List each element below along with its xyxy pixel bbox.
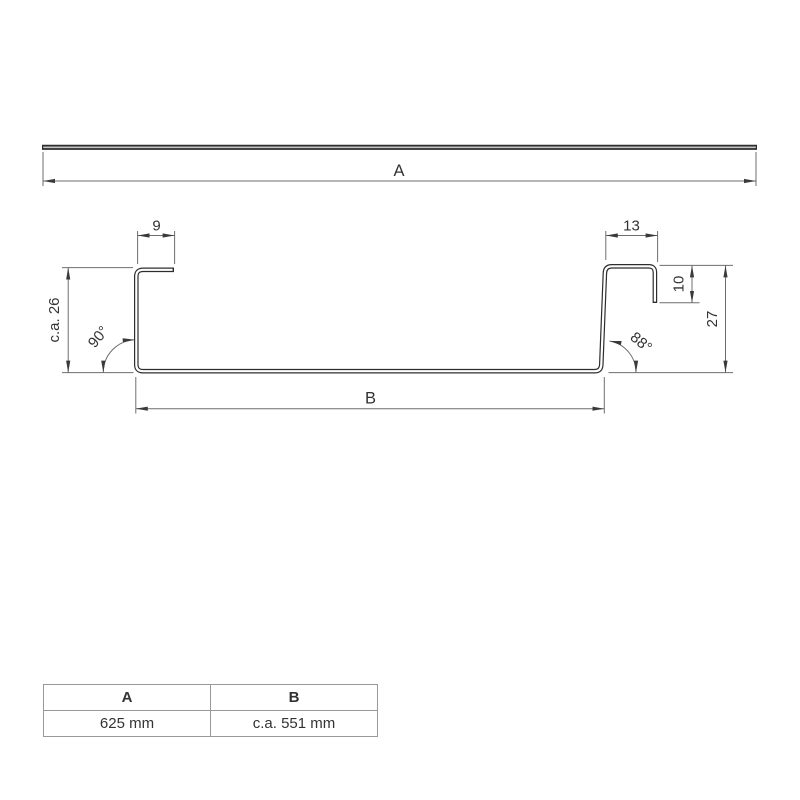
angle-90-arc (103, 340, 134, 373)
label-9: 9 (152, 218, 160, 235)
table-value-row: 625 mm c.a. 551 mm (44, 711, 378, 737)
table-header-a: A (44, 685, 211, 711)
label-27: 27 (704, 311, 721, 328)
profile-technical-drawing: A 9 13 c.a. 26 90° 88° 10 27 B (0, 0, 800, 800)
label-90deg: 90° (85, 323, 113, 351)
page: A 9 13 c.a. 26 90° 88° 10 27 B A B 625 m… (0, 0, 800, 800)
table-header-row: A B (44, 685, 378, 711)
label-b: B (365, 390, 376, 408)
label-88deg: 88° (627, 329, 655, 357)
dimension-linework (43, 152, 756, 414)
table-value-a: 625 mm (44, 711, 211, 737)
profile-outline (136, 266, 655, 371)
profile-sheet-outer (136, 266, 655, 371)
label-13: 13 (623, 218, 640, 235)
table-header-b: B (211, 685, 378, 711)
table-value-b: c.a. 551 mm (211, 711, 378, 737)
label-10: 10 (671, 276, 688, 293)
label-a: A (393, 162, 404, 180)
dimension-table: A B 625 mm c.a. 551 mm (43, 684, 378, 737)
profile-sheet-core (136, 266, 655, 371)
label-ca26: c.a. 26 (46, 297, 63, 342)
